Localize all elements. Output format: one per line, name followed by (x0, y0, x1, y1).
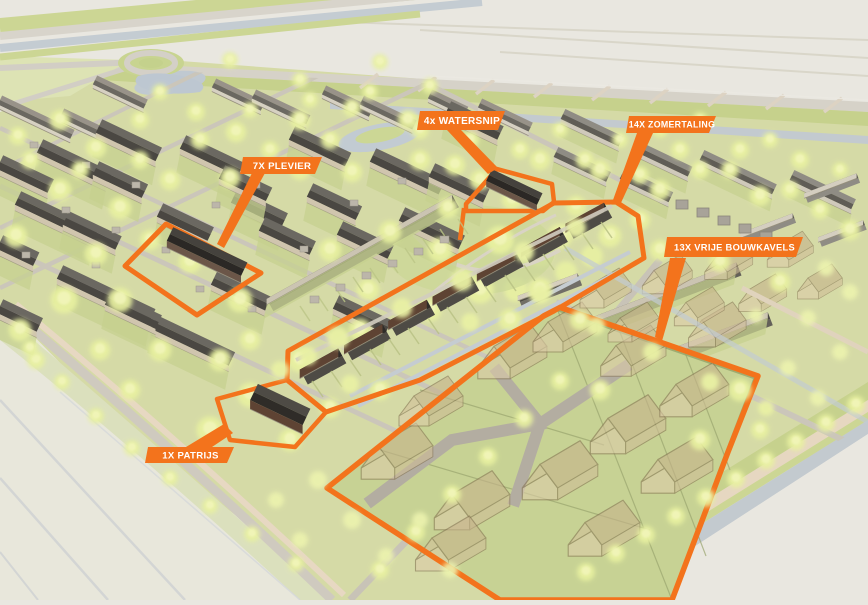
svg-text:7X PLEVIER: 7X PLEVIER (253, 161, 311, 172)
svg-text:1X PATRIJS: 1X PATRIJS (162, 450, 219, 461)
svg-text:4x WATERSNIP: 4x WATERSNIP (424, 116, 500, 127)
svg-text:14X ZOMERTALING: 14X ZOMERTALING (629, 120, 715, 130)
svg-text:13X VRIJE BOUWKAVELS: 13X VRIJE BOUWKAVELS (674, 242, 795, 252)
